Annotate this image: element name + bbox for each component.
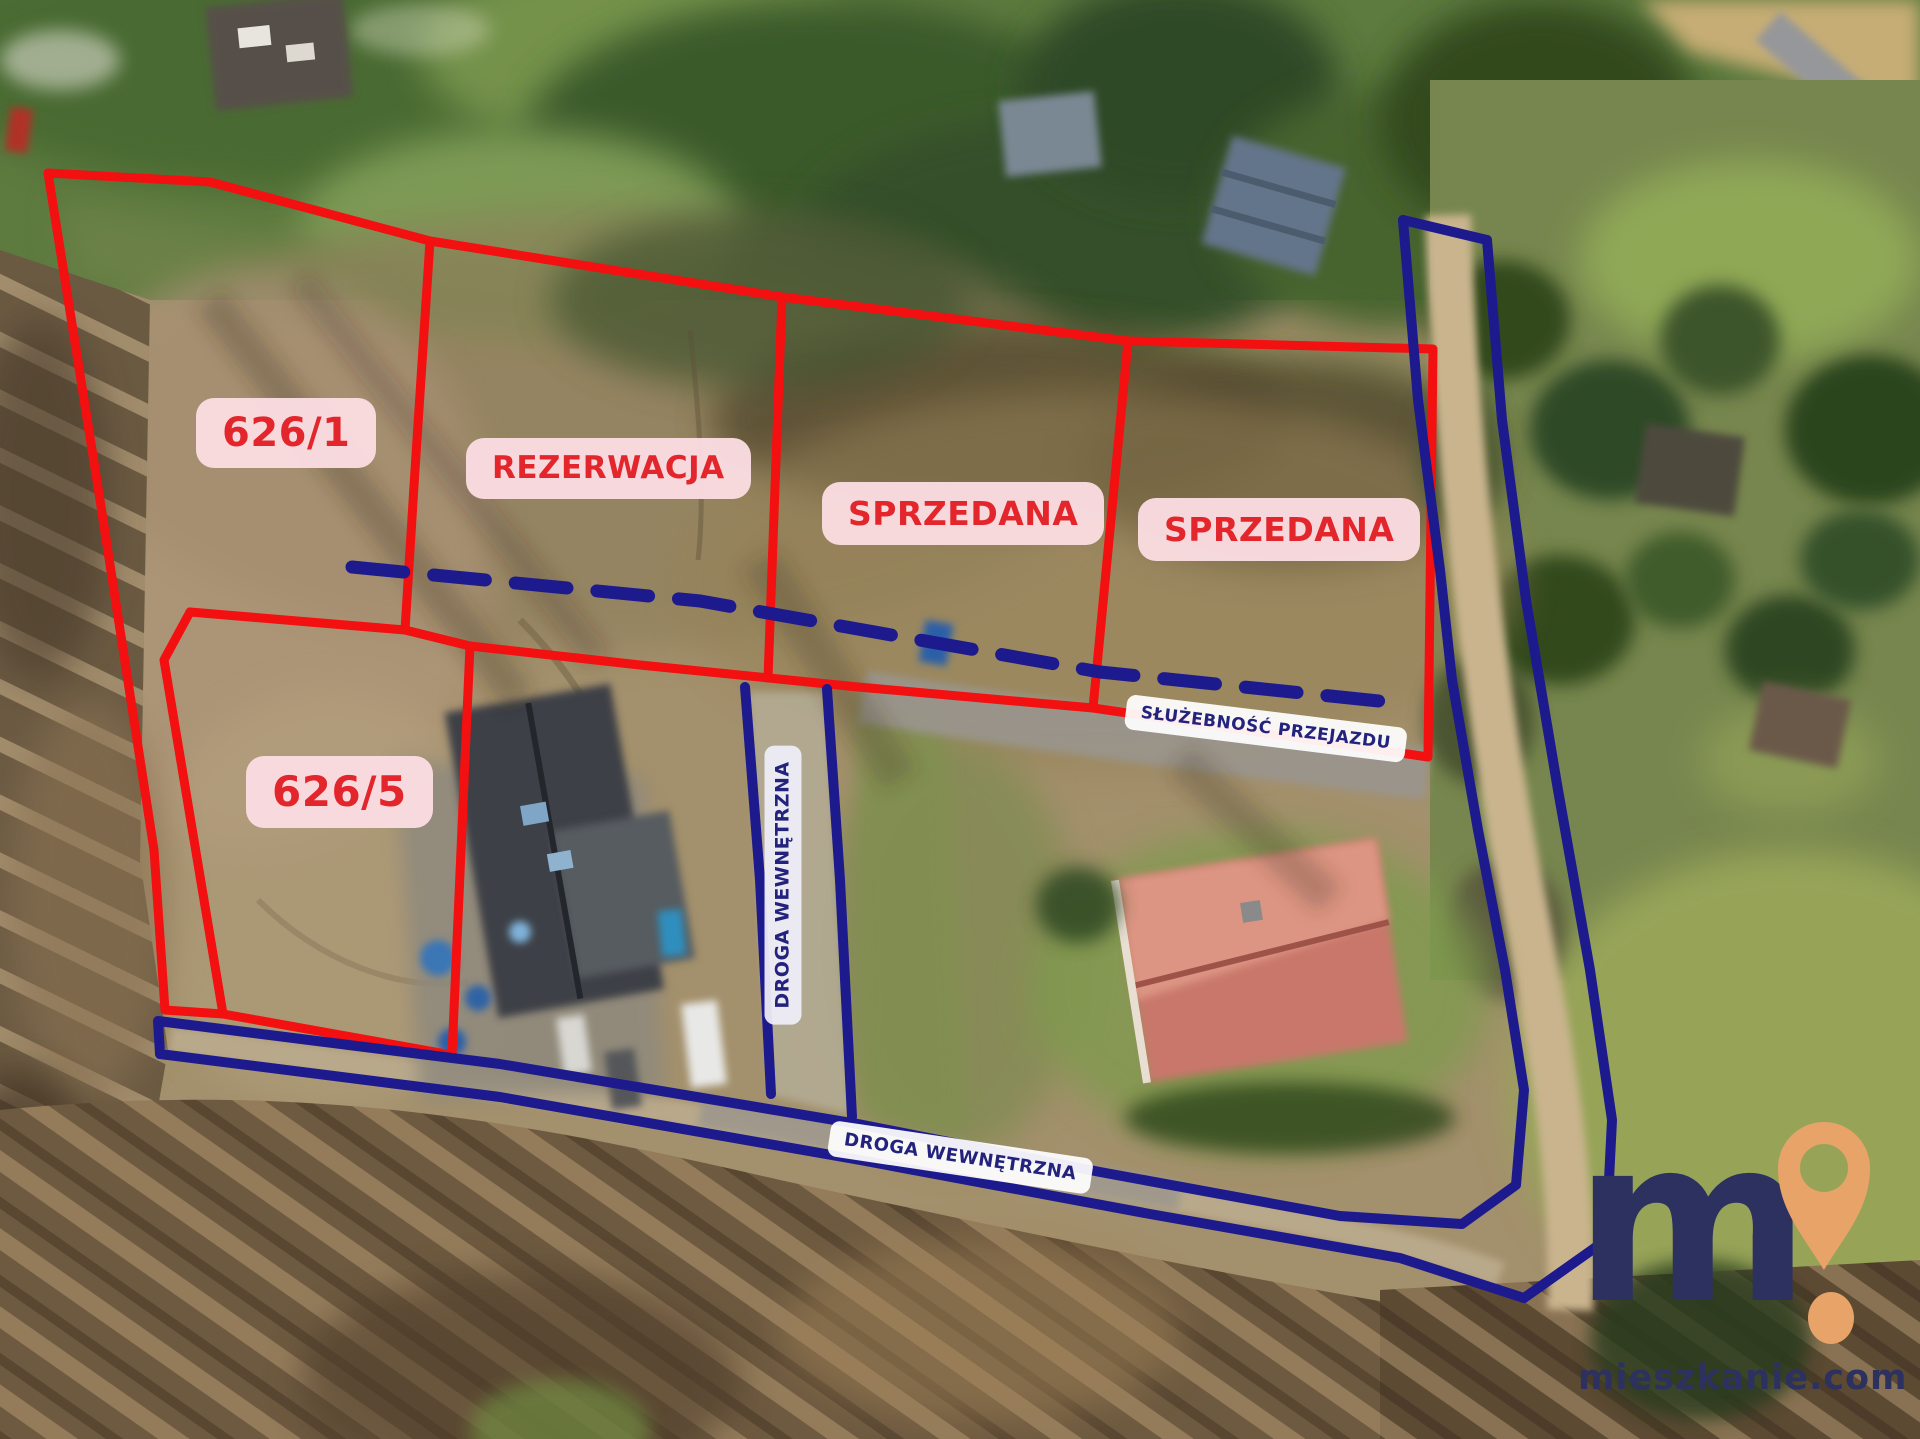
plot-label-sprzedana-2: SPRZEDANA (1138, 498, 1420, 561)
exclamation-dot (1808, 1292, 1854, 1344)
road-label-internal-vertical: DROGA WEWNĘTRZNA (765, 745, 802, 1024)
map-pin-exclamation-icon (1772, 1112, 1876, 1272)
plot-label-626-1: 626/1 (196, 398, 376, 468)
mieszkanie-logo: m mieszkanie.com (1560, 1100, 1900, 1420)
plot-label-sprzedana-1: SPRZEDANA (822, 482, 1104, 545)
plot-label-rezerwacja: REZERWACJA (466, 438, 751, 499)
aerial-plot-map: 626/1 REZERWACJA SPRZEDANA SPRZEDANA 626… (0, 0, 1920, 1439)
plot-label-626-5: 626/5 (246, 756, 433, 828)
logo-site-text: mieszkanie.com (1578, 1358, 1908, 1398)
